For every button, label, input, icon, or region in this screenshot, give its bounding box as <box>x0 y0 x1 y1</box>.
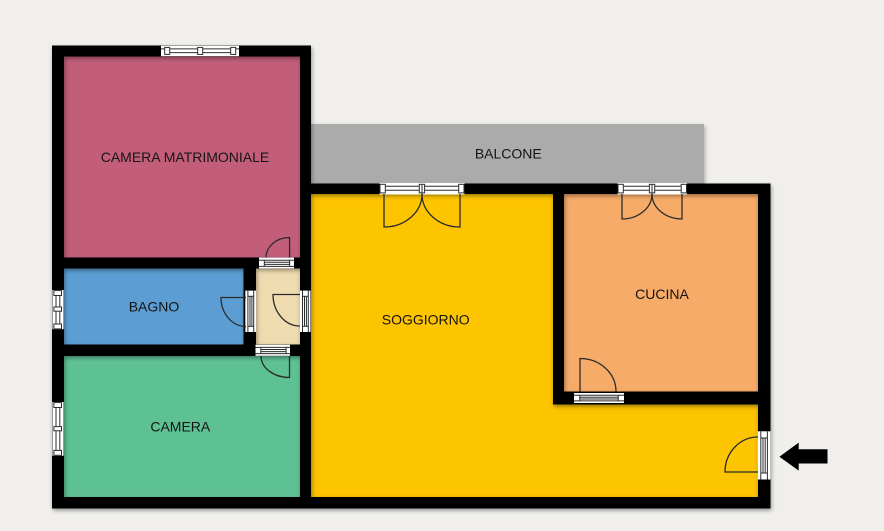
svg-text:BAGNO: BAGNO <box>129 299 180 315</box>
svg-text:CAMERA: CAMERA <box>150 419 211 435</box>
svg-text:CAMERA MATRIMONIALE: CAMERA MATRIMONIALE <box>101 149 270 165</box>
svg-text:CUCINA: CUCINA <box>635 286 689 302</box>
svg-text:BALCONE: BALCONE <box>475 146 542 162</box>
svg-text:SOGGIORNO: SOGGIORNO <box>382 312 470 328</box>
